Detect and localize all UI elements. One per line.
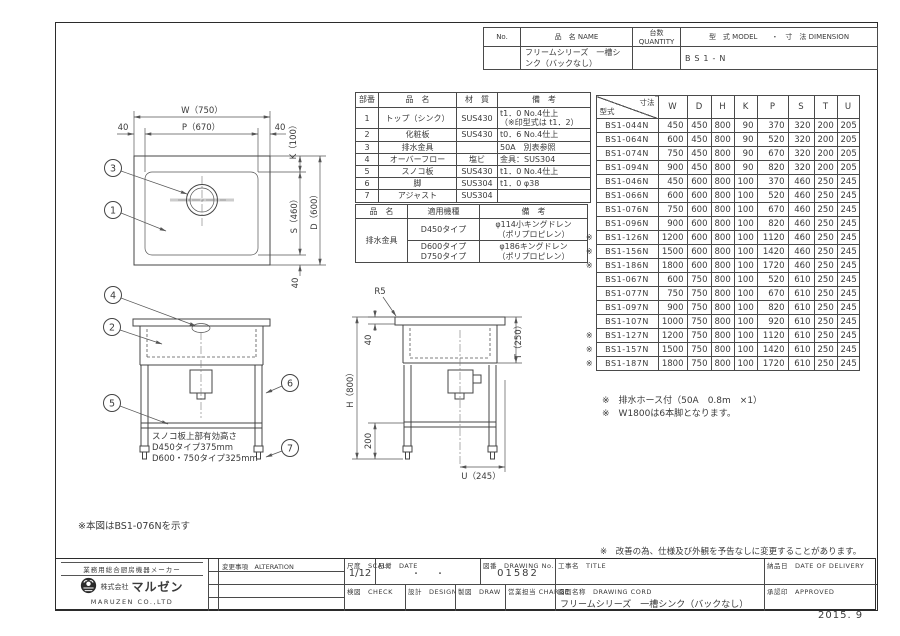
dim-table-row: ※BS1-156N15006008001001420460250245 — [583, 245, 859, 259]
dim-value-cell: 245 — [837, 343, 859, 357]
dim-column-header: P — [757, 96, 788, 119]
row-mark — [583, 287, 596, 301]
dim-value-cell: 245 — [837, 231, 859, 245]
dim-value-cell: 370 — [757, 119, 788, 133]
model-cell: BS1-187N — [596, 357, 658, 371]
row-mark — [583, 161, 596, 175]
dim-value-cell: 900 — [658, 217, 687, 231]
svg-text:6: 6 — [287, 379, 293, 390]
dim-value-cell: 800 — [711, 217, 734, 231]
model-cell: BS1-126N — [596, 231, 658, 245]
dim-s-label: S（460） — [289, 195, 300, 234]
dim-value-cell: 245 — [837, 273, 859, 287]
delivery-cell: 納品日 DATE OF DELIVERY — [764, 559, 877, 585]
dim-value-cell: 245 — [837, 217, 859, 231]
drawing-name-cell: 図面名称 DRAWING CORD フリームシリーズ 一槽シンク（バックなし） — [555, 585, 764, 611]
dim-value-cell: 750 — [687, 287, 711, 301]
dim-value-cell: 250 — [814, 343, 837, 357]
dim-value-cell: 460 — [788, 259, 814, 273]
dim-value-cell: 200 — [814, 119, 837, 133]
dim-table-row: ※BS1-186N18006008001001720460250245 — [583, 259, 859, 273]
dim-value-cell: 600 — [687, 231, 711, 245]
row-mark — [583, 273, 596, 287]
dim-value-cell: 800 — [711, 119, 734, 133]
dim-value-cell: 250 — [814, 217, 837, 231]
scale-cell: 尺度 SCALE 1/12 — [344, 559, 375, 585]
model-cell: BS1-107N — [596, 315, 658, 329]
dim-value-cell: 670 — [757, 147, 788, 161]
dim-value-cell: 100 — [734, 357, 757, 371]
balloon-7: 7 — [282, 440, 299, 457]
dim-value-cell: 1120 — [757, 329, 788, 343]
dim-value-cell: 600 — [687, 259, 711, 273]
dim-value-cell: 820 — [757, 301, 788, 315]
approved-label: 承認印 APPROVED — [767, 586, 834, 596]
header-no-label: No. — [484, 28, 521, 47]
company-name-en: MARUZEN CO.,LTD — [56, 598, 208, 606]
row-mark: ※ — [583, 357, 596, 371]
dim-value-cell: 1200 — [658, 231, 687, 245]
drawing-name-value: フリームシリーズ 一槽シンク（バックなし） — [560, 597, 764, 610]
balloon-6: 6 — [282, 375, 299, 392]
dim-value-cell: 800 — [711, 287, 734, 301]
dim-value-cell: 100 — [734, 287, 757, 301]
dim-h-label: H（800） — [345, 368, 356, 408]
header-no-value — [484, 47, 521, 70]
model-cell: BS1-067N — [596, 273, 658, 287]
dim-value-cell: 245 — [837, 175, 859, 189]
dimension-table: 寸法 型式 WDHKPSTU BS1-044N45045080090370320… — [583, 95, 860, 371]
dim-value-cell: 600 — [658, 133, 687, 147]
side-drain-trap — [448, 370, 473, 393]
dim-value-cell: 100 — [734, 175, 757, 189]
row-mark: ※ — [583, 329, 596, 343]
dim-value-cell: 920 — [757, 315, 788, 329]
dim-table-row: ※BS1-126N12006008001001120460250245 — [583, 231, 859, 245]
dim-column-header: K — [734, 96, 757, 119]
balloon-2: 2 — [104, 319, 121, 336]
dim-value-cell: 1500 — [658, 245, 687, 259]
title-block: 業務用総合厨房機器メーカー 株式会社 マルゼン MARUZEN CO.,LTD … — [55, 558, 876, 610]
dim-p-label: P（670） — [182, 122, 220, 133]
dim-value-cell: 90 — [734, 119, 757, 133]
drawing-sheet: No. 品 名 NAME 台数 QUANTITY 型 式 MODEL ・ 寸 法… — [0, 0, 900, 636]
dim-table-row: ※BS1-127N12007508001001120610250245 — [583, 329, 859, 343]
model-cell: BS1-096N — [596, 217, 658, 231]
row-mark: ※ — [583, 343, 596, 357]
dim-value-cell: 800 — [711, 315, 734, 329]
draw-cell: 製図 DRAW — [455, 585, 505, 611]
slat-note-line3: D600・750タイプ325mm — [152, 454, 258, 464]
change-note: ※ 改善の為、仕様及び外観を予告なしに変更することがあります。 — [600, 545, 858, 557]
dim-value-cell: 800 — [711, 343, 734, 357]
dim-value-cell: 450 — [687, 119, 711, 133]
dim-value-cell: 610 — [788, 343, 814, 357]
dim-column-header: T — [814, 96, 837, 119]
dim-value-cell: 320 — [788, 161, 814, 175]
company-box: 業務用総合厨房機器メーカー 株式会社 マルゼン MARUZEN CO.,LTD — [56, 559, 208, 611]
dim-table-corner: 寸法 型式 — [596, 96, 658, 119]
side-tabletop — [395, 317, 505, 325]
dim-value-cell: 820 — [757, 161, 788, 175]
dim-40-bottom-label: 40 — [291, 278, 301, 289]
dim-value-cell: 100 — [734, 329, 757, 343]
dim-d-label: D（600） — [309, 190, 320, 230]
svg-text:5: 5 — [109, 399, 115, 410]
dim-table-body: BS1-044N45045080090370320200205BS1-064N6… — [583, 119, 859, 371]
dim-value-cell: 610 — [788, 273, 814, 287]
dim-table-row: BS1-046N450600800100370460250245 — [583, 175, 859, 189]
front-adjuster-left — [140, 446, 149, 452]
dim-value-cell: 320 — [788, 119, 814, 133]
row-mark: ※ — [583, 231, 596, 245]
model-cell: BS1-064N — [596, 133, 658, 147]
dim-side-40-label: 40 — [364, 335, 374, 346]
dim-column-header: S — [788, 96, 814, 119]
dim-value-cell: 250 — [814, 259, 837, 273]
row-mark: ※ — [583, 259, 596, 273]
dim-value-cell: 100 — [734, 343, 757, 357]
dim-value-cell: 750 — [687, 329, 711, 343]
dim-value-cell: 610 — [788, 329, 814, 343]
dim-value-cell: 900 — [658, 161, 687, 175]
dim-value-cell: 320 — [788, 147, 814, 161]
model-cell: BS1-077N — [596, 287, 658, 301]
header-qty-value — [633, 47, 681, 70]
dim-column-header: H — [711, 96, 734, 119]
dim-value-cell: 1720 — [757, 259, 788, 273]
svg-text:7: 7 — [287, 444, 293, 455]
dim-40-left-label: 40 — [118, 123, 129, 133]
dim-value-cell: 250 — [814, 301, 837, 315]
dim-value-cell: 450 — [687, 147, 711, 161]
slat-note-line1: スノコ板上部有効高さ — [152, 431, 237, 442]
table-note-1: ※ 排水ホース付（50A 0.8m ×1） — [602, 393, 762, 406]
charge-cell: 営業担当 CHARGE — [505, 585, 555, 611]
dim-table-row: ※BS1-187N18007508001001720610250245 — [583, 357, 859, 371]
design-cell: 設計 DESIGN — [405, 585, 455, 611]
dim-column-header: U — [837, 96, 859, 119]
dim-value-cell: 1720 — [757, 357, 788, 371]
dim-u-label: U（245） — [461, 471, 500, 482]
dim-value-cell: 670 — [757, 203, 788, 217]
header-table: No. 品 名 NAME 台数 QUANTITY 型 式 MODEL ・ 寸 法… — [483, 27, 878, 70]
dim-value-cell: 100 — [734, 203, 757, 217]
dim-value-cell: 900 — [658, 301, 687, 315]
dim-value-cell: 250 — [814, 273, 837, 287]
dim-value-cell: 200 — [814, 161, 837, 175]
dim-value-cell: 600 — [658, 189, 687, 203]
dim-value-cell: 460 — [788, 189, 814, 203]
technical-drawing: W（750） P（670） 40 40 K（100） S（460） 40 D（6… — [60, 80, 580, 520]
dim-r5-label: R5 — [374, 287, 385, 297]
model-cell: BS1-186N — [596, 259, 658, 273]
dim-value-cell: 100 — [734, 245, 757, 259]
dim-table-row: BS1-066N600600800100520460250245 — [583, 189, 859, 203]
model-cell: BS1-127N — [596, 329, 658, 343]
side-adjuster-left — [403, 446, 412, 452]
dim-value-cell: 820 — [757, 217, 788, 231]
alteration-box: 変更事項 ALTERATION — [218, 559, 344, 611]
row-mark: ※ — [583, 245, 596, 259]
dim-value-cell: 250 — [814, 287, 837, 301]
dim-value-cell: 250 — [814, 357, 837, 371]
dim-value-cell: 100 — [734, 231, 757, 245]
dim-value-cell: 800 — [711, 259, 734, 273]
dim-value-cell: 90 — [734, 147, 757, 161]
dim-value-cell: 610 — [788, 287, 814, 301]
dim-value-cell: 200 — [814, 147, 837, 161]
side-view: R5 40 H（800） T（250） — [345, 287, 524, 482]
dim-table-row: BS1-094N90045080090820320200205 — [583, 161, 859, 175]
header-name-value: フリームシリーズ 一槽シンク（バックなし） — [521, 47, 633, 70]
dim-value-cell: 460 — [788, 245, 814, 259]
model-cell: BS1-046N — [596, 175, 658, 189]
dim-table-row: BS1-096N900600800100820460250245 — [583, 217, 859, 231]
dim-value-cell: 750 — [658, 287, 687, 301]
dim-value-cell: 600 — [658, 273, 687, 287]
model-cell: BS1-097N — [596, 301, 658, 315]
dim-value-cell: 205 — [837, 119, 859, 133]
dim-value-cell: 245 — [837, 287, 859, 301]
dim-value-cell: 520 — [757, 133, 788, 147]
dim-value-cell: 100 — [734, 259, 757, 273]
dim-value-cell: 450 — [658, 175, 687, 189]
alteration-label: 変更事項 ALTERATION — [219, 559, 344, 572]
svg-text:3: 3 — [110, 164, 116, 175]
dim-value-cell: 450 — [687, 133, 711, 147]
dim-value-cell: 1000 — [658, 315, 687, 329]
side-adjuster-right — [488, 446, 497, 452]
dim-value-cell: 250 — [814, 231, 837, 245]
dim-value-cell: 250 — [814, 175, 837, 189]
dim-value-cell: 1800 — [658, 259, 687, 273]
dim-value-cell: 750 — [687, 357, 711, 371]
row-mark — [583, 301, 596, 315]
balloon-5: 5 — [104, 395, 121, 412]
title-label: 工事名 TITLE — [558, 560, 606, 570]
dim-value-cell: 1420 — [757, 245, 788, 259]
balloon-1: 1 — [105, 202, 122, 219]
model-cell: BS1-066N — [596, 189, 658, 203]
dim-table-row: BS1-097N900750800100820610250245 — [583, 301, 859, 315]
dim-value-cell: 600 — [687, 203, 711, 217]
dim-table-row: BS1-067N600750800100520610250245 — [583, 273, 859, 287]
dim-value-cell: 245 — [837, 245, 859, 259]
dim-value-cell: 800 — [711, 273, 734, 287]
row-mark — [583, 203, 596, 217]
drawing-no-value: 01582 — [481, 568, 555, 579]
model-cell: BS1-076N — [596, 203, 658, 217]
draw-label: 製図 DRAW — [458, 586, 501, 596]
dim-value-cell: 100 — [734, 189, 757, 203]
drawing-no-cell: 図番 DRAWING No. 01582 — [480, 559, 555, 585]
dim-value-cell: 245 — [837, 259, 859, 273]
dim-table-row: BS1-044N45045080090370320200205 — [583, 119, 859, 133]
check-cell: 検図 CHECK — [344, 585, 405, 611]
dim-value-cell: 460 — [788, 231, 814, 245]
slat-note-line2: D450タイプ375mm — [152, 443, 233, 453]
dim-table-row: BS1-076N750600800100670460250245 — [583, 203, 859, 217]
dim-value-cell: 245 — [837, 315, 859, 329]
dim-k-label: K（100） — [288, 121, 299, 160]
dim-value-cell: 205 — [837, 161, 859, 175]
dim-value-cell: 800 — [711, 329, 734, 343]
dim-value-cell: 610 — [788, 357, 814, 371]
alteration-row — [219, 572, 344, 585]
revision-mark-column — [208, 559, 218, 611]
svg-text:4: 4 — [110, 291, 116, 302]
row-mark — [583, 217, 596, 231]
design-label: 設計 DESIGN — [408, 586, 457, 596]
dim-value-cell: 750 — [687, 343, 711, 357]
model-cell: BS1-156N — [596, 245, 658, 259]
check-label: 検図 CHECK — [347, 586, 393, 596]
dim-value-cell: 90 — [734, 161, 757, 175]
corner-model-label: 型式 — [600, 106, 615, 117]
dim-value-cell: 245 — [837, 301, 859, 315]
dim-value-cell: 245 — [837, 189, 859, 203]
model-cell: BS1-074N — [596, 147, 658, 161]
dim-value-cell: 800 — [711, 245, 734, 259]
dim-value-cell: 800 — [711, 357, 734, 371]
balloon-3: 3 — [105, 160, 122, 177]
dim-value-cell: 600 — [687, 175, 711, 189]
dim-value-cell: 460 — [788, 203, 814, 217]
dim-value-cell: 460 — [788, 175, 814, 189]
dim-t-label: T（250） — [513, 321, 524, 360]
company-name: マルゼン — [131, 578, 183, 595]
dim-40-right-label: 40 — [275, 123, 286, 133]
dim-value-cell: 250 — [814, 245, 837, 259]
front-adjuster-right — [254, 446, 263, 452]
header-model-value: BS1-N — [681, 47, 878, 70]
dim-value-cell: 750 — [687, 301, 711, 315]
row-mark — [583, 147, 596, 161]
row-mark — [583, 315, 596, 329]
dim-value-cell: 90 — [734, 133, 757, 147]
dim-table-row: BS1-107N1000750800100920610250245 — [583, 315, 859, 329]
svg-text:2: 2 — [109, 323, 115, 334]
dim-value-cell: 100 — [734, 217, 757, 231]
dim-value-cell: 800 — [711, 301, 734, 315]
dim-table-row: ※BS1-157N15007508001001420610250245 — [583, 343, 859, 357]
front-tabletop — [133, 319, 270, 326]
dim-value-cell: 205 — [837, 133, 859, 147]
dim-value-cell: 250 — [814, 203, 837, 217]
dim-value-cell: 1500 — [658, 343, 687, 357]
dim-value-cell: 1120 — [757, 231, 788, 245]
row-mark — [583, 119, 596, 133]
dim-value-cell: 245 — [837, 329, 859, 343]
front-slat-rail — [141, 423, 262, 428]
dim-value-cell: 100 — [734, 315, 757, 329]
dim-value-cell: 245 — [837, 357, 859, 371]
date-cell: 日付 DATE ・ ・ — [375, 559, 480, 585]
front-overflow-hole — [192, 324, 210, 333]
dim-value-cell: 600 — [687, 189, 711, 203]
dim-value-cell: 800 — [711, 231, 734, 245]
date-value: ・ ・ — [376, 568, 480, 579]
alteration-row — [219, 598, 344, 611]
approved-cell: 承認印 APPROVED — [764, 585, 877, 611]
dim-value-cell: 450 — [658, 119, 687, 133]
header-qty-label: 台数 QUANTITY — [633, 28, 681, 47]
dim-value-cell: 800 — [711, 133, 734, 147]
dim-value-cell: 250 — [814, 315, 837, 329]
row-mark — [583, 133, 596, 147]
dim-value-cell: 250 — [814, 189, 837, 203]
dim-value-cell: 250 — [814, 329, 837, 343]
dim-value-cell: 750 — [687, 315, 711, 329]
dim-value-cell: 1200 — [658, 329, 687, 343]
model-cell: BS1-044N — [596, 119, 658, 133]
dim-value-cell: 520 — [757, 273, 788, 287]
dim-value-cell: 1800 — [658, 357, 687, 371]
dim-value-cell: 100 — [734, 273, 757, 287]
company-tagline: 業務用総合厨房機器メーカー — [61, 562, 203, 576]
dim-value-cell: 800 — [711, 203, 734, 217]
row-mark — [583, 175, 596, 189]
drawing-name-label: 図面名称 DRAWING CORD — [558, 586, 652, 596]
dim-value-cell: 610 — [788, 315, 814, 329]
dim-value-cell: 245 — [837, 203, 859, 217]
dim-column-header: D — [687, 96, 711, 119]
dim-value-cell: 460 — [788, 217, 814, 231]
dim-value-cell: 205 — [837, 147, 859, 161]
side-slat-rail — [404, 422, 496, 427]
row-mark — [583, 189, 596, 203]
front-view: 4 2 5 6 7 スノコ板上部有効高さ D — [104, 287, 299, 465]
dim-value-cell: 1420 — [757, 343, 788, 357]
dim-table-row: BS1-077N750750800100670610250245 — [583, 287, 859, 301]
corner-dimension-label: 寸法 — [640, 97, 655, 108]
dim-value-cell: 200 — [814, 133, 837, 147]
dim-value-cell: 600 — [687, 245, 711, 259]
header-name-label: 品 名 NAME — [521, 28, 633, 47]
scale-value: 1/12 — [345, 568, 375, 579]
dim-w-label: W（750） — [181, 105, 223, 116]
maruzen-logo-icon — [80, 577, 97, 596]
dim-value-cell: 750 — [658, 203, 687, 217]
dim-value-cell: 800 — [711, 189, 734, 203]
dim-value-cell: 800 — [711, 175, 734, 189]
svg-text:1: 1 — [110, 206, 116, 217]
model-cell: BS1-157N — [596, 343, 658, 357]
footer-date: 2015. 9 — [818, 610, 863, 621]
alteration-row — [219, 585, 344, 598]
plan-view: W（750） P（670） 40 40 K（100） S（460） 40 D（6… — [105, 105, 327, 288]
dim-value-cell: 800 — [711, 147, 734, 161]
dim-value-cell: 520 — [757, 189, 788, 203]
dim-header-mark-spacer — [583, 96, 596, 119]
dim-value-cell: 750 — [658, 147, 687, 161]
dim-table-row: BS1-074N75045080090670320200205 — [583, 147, 859, 161]
dim-value-cell: 800 — [711, 161, 734, 175]
company-prefix: 株式会社 — [100, 582, 128, 592]
table-note-2: ※ W1800は6本脚となります。 — [602, 406, 736, 419]
dim-value-cell: 100 — [734, 301, 757, 315]
dim-value-cell: 450 — [687, 161, 711, 175]
dim-value-cell: 670 — [757, 287, 788, 301]
dim-table-row: BS1-064N60045080090520320200205 — [583, 133, 859, 147]
dim-value-cell: 370 — [757, 175, 788, 189]
delivery-label: 納品日 DATE OF DELIVERY — [767, 560, 864, 570]
dim-200-label: 200 — [364, 433, 374, 449]
dim-value-cell: 750 — [687, 273, 711, 287]
dim-value-cell: 320 — [788, 133, 814, 147]
dim-value-cell: 610 — [788, 301, 814, 315]
